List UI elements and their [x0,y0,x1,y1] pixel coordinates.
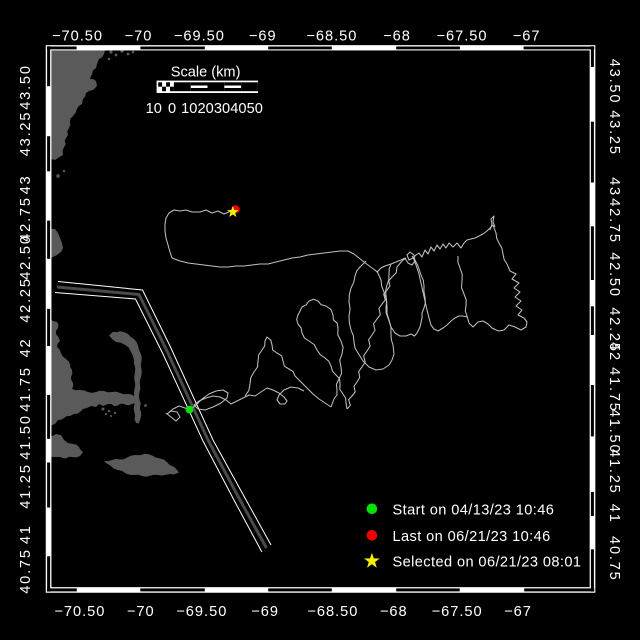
svg-text:−70: −70 [125,29,153,45]
svg-text:41.75: 41.75 [606,367,622,413]
svg-text:20: 20 [197,101,213,117]
svg-text:43.50: 43.50 [18,64,34,110]
svg-text:−69: −69 [251,604,279,620]
svg-text:−67.50: −67.50 [432,604,483,620]
svg-text:41: 41 [18,524,34,544]
svg-text:−68: −68 [380,604,408,620]
svg-text:43.25: 43.25 [18,111,34,157]
svg-text:42.25: 42.25 [18,277,34,323]
svg-text:42.75: 42.75 [606,198,622,244]
svg-text:43: 43 [18,175,34,195]
svg-text:40.75: 40.75 [606,536,622,582]
svg-text:Last on 06/21/23 10:46: Last on 06/21/23 10:46 [393,529,551,545]
svg-text:−68.50: −68.50 [307,604,358,620]
svg-text:50: 50 [247,101,263,117]
svg-text:42.50: 42.50 [606,252,622,298]
svg-text:10: 10 [181,101,197,117]
svg-text:−68: −68 [383,29,411,45]
svg-text:−67.50: −67.50 [436,29,487,45]
svg-text:−69: −69 [249,29,277,45]
svg-text:41.50: 41.50 [606,409,622,455]
svg-text:−68.50: −68.50 [306,29,357,45]
svg-text:−70: −70 [127,604,155,620]
svg-text:42.50: 42.50 [18,234,34,280]
svg-text:43.25: 43.25 [606,110,622,156]
svg-text:0: 0 [168,101,176,117]
svg-text:41.25: 41.25 [18,463,34,509]
svg-text:Scale (km): Scale (km) [171,65,241,81]
svg-text:10: 10 [146,101,162,117]
svg-text:42: 42 [606,342,622,362]
svg-text:Start on 04/13/23 10:46: Start on 04/13/23 10:46 [393,502,555,518]
svg-text:−67: −67 [504,604,532,620]
svg-text:41: 41 [606,504,622,524]
svg-text:43.50: 43.50 [606,59,622,105]
svg-text:41.25: 41.25 [606,449,622,495]
svg-text:−70.50: −70.50 [52,29,103,45]
svg-text:42: 42 [18,338,34,358]
svg-text:40.75: 40.75 [18,548,34,594]
svg-text:−67: −67 [513,29,541,45]
svg-text:30: 30 [214,101,230,117]
svg-text:Selected on 06/21/23 08:01: Selected on 06/21/23 08:01 [393,554,582,570]
svg-text:−70.50: −70.50 [54,604,105,620]
svg-text:−69.50: −69.50 [176,604,227,620]
svg-text:−69.50: −69.50 [174,29,225,45]
svg-text:43: 43 [606,177,622,197]
svg-text:41.50: 41.50 [18,414,34,460]
svg-text:40: 40 [230,101,246,117]
svg-text:41.75: 41.75 [18,366,34,412]
